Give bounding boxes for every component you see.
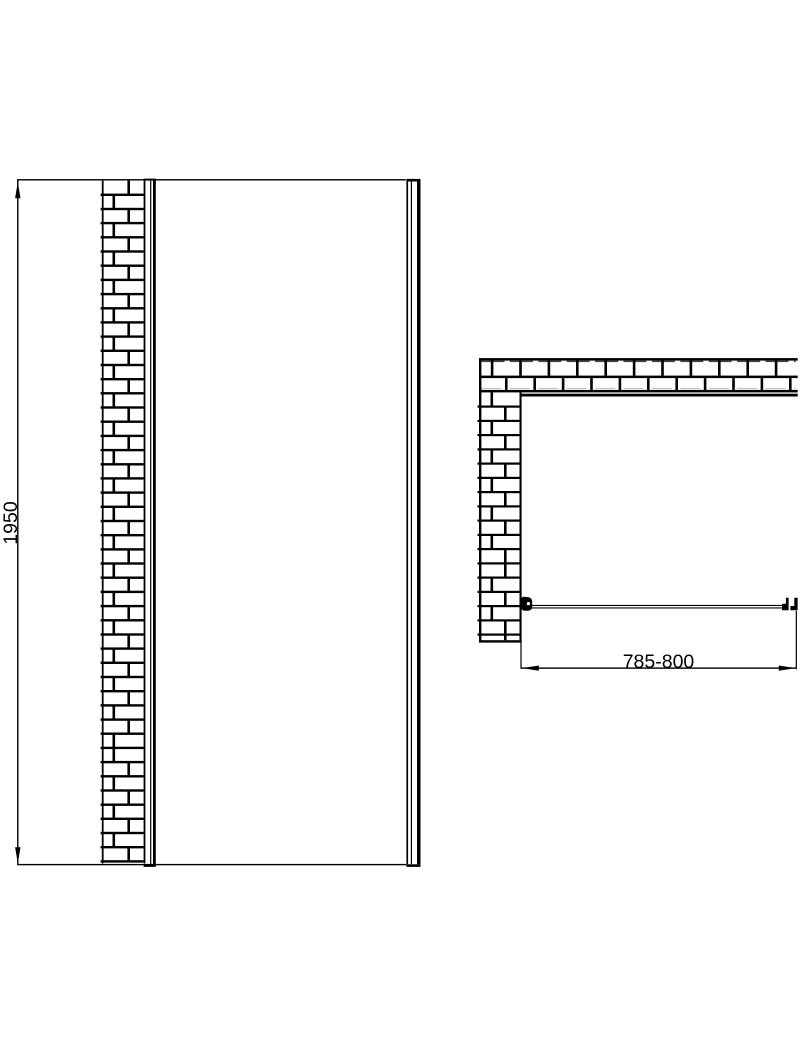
svg-text:785-800: 785-800 xyxy=(623,651,695,673)
svg-text:1950: 1950 xyxy=(0,501,22,545)
